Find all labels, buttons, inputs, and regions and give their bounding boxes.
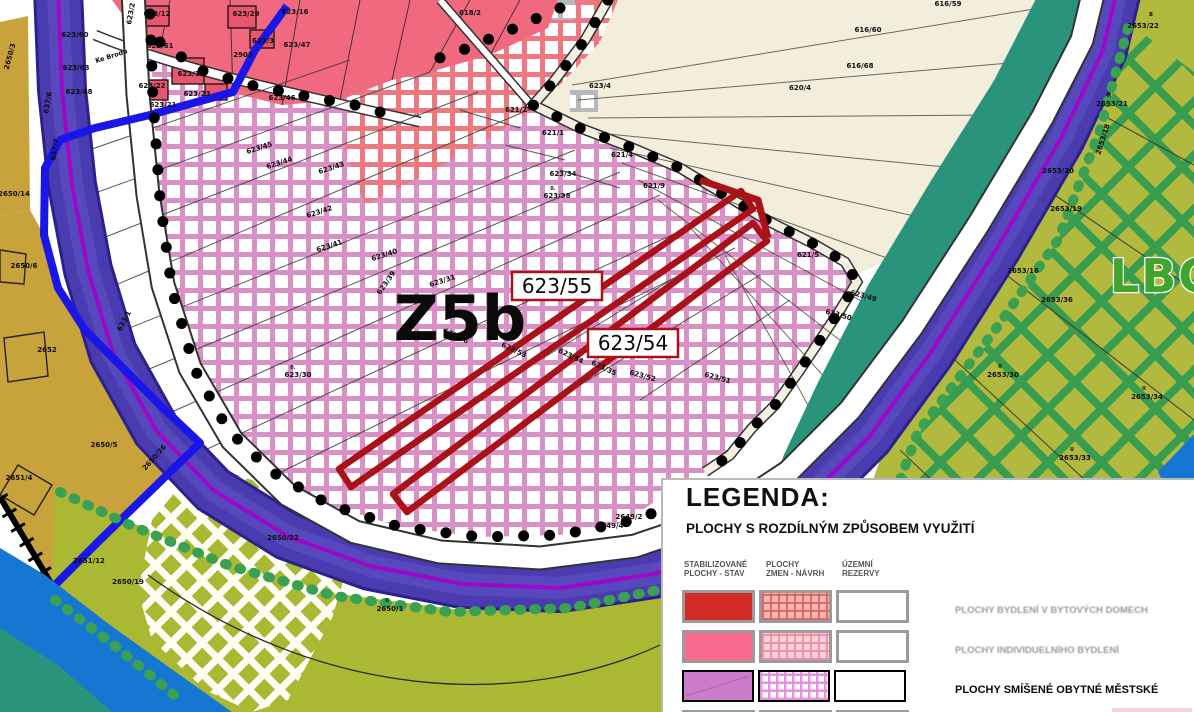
- parcel-label: 616/59: [935, 0, 962, 8]
- legend-row-labels: PLOCHY BYDLENÍ V BYTOVÝCH DOMECH PLOCHY …: [955, 590, 1158, 710]
- parcel-label: 623/63: [63, 64, 90, 72]
- callout-623-54: 623/54: [588, 329, 678, 357]
- swatch-individualni-stav: [682, 630, 755, 663]
- legend-col-navrh: PLOCHYZMEN - NÁVRH: [766, 560, 842, 578]
- parcel-label: 2652: [37, 346, 57, 354]
- parcel-label: 2651/4: [6, 474, 33, 482]
- parcel-label: II: [385, 598, 389, 604]
- parcel-label: 621/5: [797, 251, 819, 259]
- swatch-bytove-navrh: [759, 590, 832, 623]
- legend-column-headers: STABILIZOVANÉPLOCHY - STAV PLOCHYZMEN - …: [684, 560, 912, 578]
- legend-subtitle: PLOCHY S ROZDÍLNÝM ZPŮSOBEM VYUŽITÍ: [686, 521, 975, 536]
- swatch-individualni-rezerva: [836, 630, 909, 663]
- parcel-label: 2649/4: [597, 522, 624, 530]
- parcel-label: 621/4: [611, 151, 633, 159]
- legend-label-smisene: PLOCHY SMÍŠENÉ OBYTNÉ MĚSTSKÉ: [955, 670, 1158, 710]
- parcel-label: 2653/16: [1007, 267, 1039, 275]
- parcel-label: 2653/21: [1096, 100, 1128, 108]
- legend-col-stav: STABILIZOVANÉPLOCHY - STAV: [684, 560, 766, 578]
- parcel-label: II: [1142, 386, 1146, 392]
- parcel-label: 623/61: [147, 42, 174, 50]
- legend-cutoff-row: [1112, 708, 1192, 712]
- parcel-label: 623/60: [62, 31, 89, 39]
- parcel-label: 623/3: [252, 37, 274, 45]
- swatch-bytove-rezerva: [836, 590, 909, 623]
- parcel-label: 623/12: [144, 10, 171, 18]
- parcel-label: 616/68: [847, 62, 874, 70]
- parcel-label: 2653/20: [1042, 167, 1074, 175]
- grey-hatch-patch: [570, 90, 598, 112]
- parcel-label: 623/23: [184, 90, 211, 98]
- parcel-label: II: [998, 364, 1002, 370]
- legend-swatch-grid: [682, 590, 913, 712]
- parcel-label: 2653/19: [1050, 205, 1082, 213]
- parcel-label: 623/13: [178, 70, 205, 78]
- callout-label: 623/55: [522, 274, 592, 298]
- parcel-label: 2653/30: [987, 371, 1019, 379]
- parcel-label: B: [1149, 12, 1153, 18]
- parcel-label: 2650/1: [377, 605, 404, 613]
- parcel-label: 2650/6: [11, 262, 38, 270]
- legend-col-rezervy: ÚZEMNÍREZERVY: [842, 560, 912, 578]
- legend-label-individualni: PLOCHY INDIVIDUELNÍHO BYDLENÍ: [955, 630, 1158, 670]
- zoning-plan-screenshot: 623/55 623/54 Z5b LBC 623/16623/12623/29…: [0, 0, 1194, 712]
- parcel-label: 2650/5: [91, 441, 118, 449]
- parcel-label: H: [1107, 93, 1111, 99]
- legend-label-bytove: PLOCHY BYDLENÍ V BYTOVÝCH DOMECH: [955, 590, 1158, 630]
- parcel-label: 2653/34: [1131, 393, 1163, 401]
- swatch-individualni-navrh: [759, 630, 832, 663]
- callout-label: 623/54: [598, 331, 668, 355]
- parcel-label: 623/4: [589, 82, 611, 90]
- legend-title: LEGENDA:: [686, 482, 830, 513]
- parcel-label: 623/38: [544, 192, 571, 200]
- parcel-label: 623/29: [233, 10, 260, 18]
- parcel-label: 616/60: [855, 26, 882, 34]
- parcel-label: 623/16: [282, 8, 309, 16]
- parcel-label: 618/2: [459, 9, 481, 17]
- swatch-smisene-rezerva: [834, 670, 906, 702]
- parcel-label: 623/46: [269, 94, 296, 102]
- parcel-label: 623/30: [285, 371, 312, 379]
- parcel-label: 620/4: [789, 84, 811, 92]
- parcel-label: 623/47: [284, 41, 311, 49]
- legend-panel: LEGENDA: PLOCHY S ROZDÍLNÝM ZPŮSOBEM VYU…: [661, 478, 1194, 712]
- parcel-label: 2649/2: [616, 513, 643, 521]
- parcel-label: 623/48: [66, 88, 93, 96]
- parcel-label: 621/9: [643, 182, 665, 190]
- parcel-label: 621/2: [505, 106, 527, 114]
- parcel-label: 2651/12: [73, 557, 105, 565]
- parcel-label: 2650/22: [267, 534, 299, 542]
- swatch-bytove-stav: [682, 590, 755, 623]
- parcel-label: 623/22: [139, 82, 166, 90]
- parcel-label: 2903: [233, 51, 253, 59]
- swatch-smisene-navrh: [758, 670, 830, 702]
- parcel-label: 623/34: [550, 170, 577, 178]
- parcel-label: 2653/33: [1059, 454, 1091, 462]
- parcel-label: 621/1: [542, 129, 564, 137]
- parcel-label: 2653/36: [1041, 296, 1073, 304]
- parcel-label: 2650/14: [0, 190, 30, 198]
- parcel-label: 2653/22: [1127, 22, 1159, 30]
- swatch-smisene-stav: [682, 670, 754, 702]
- parcel-label: 623/21: [150, 101, 177, 109]
- lbc-label: LBC: [1110, 249, 1194, 303]
- parcel-label: II: [1070, 447, 1074, 453]
- parcel-label: Ke Brodu: [94, 47, 129, 65]
- parcel-label: 2650/19: [112, 578, 144, 586]
